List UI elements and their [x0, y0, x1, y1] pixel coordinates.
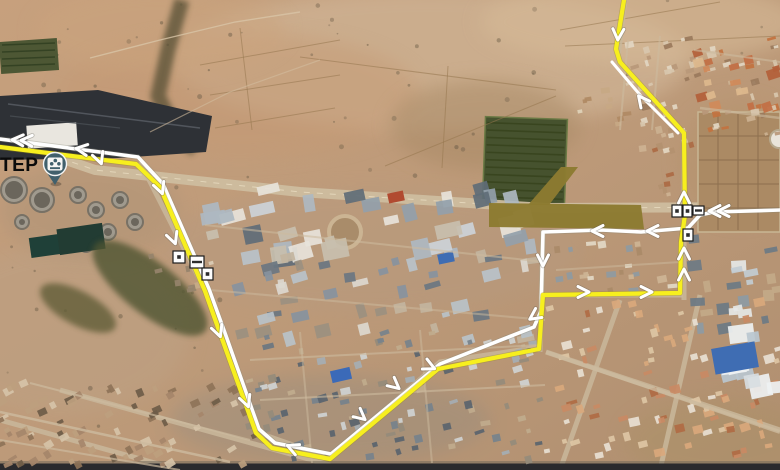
node-marker[interactable] [683, 229, 693, 241]
node-marker[interactable] [173, 251, 185, 263]
node-marker[interactable] [693, 206, 704, 215]
map-viewport[interactable]: TEP [0, 0, 780, 470]
node-marker[interactable] [672, 205, 682, 217]
node-marker[interactable] [683, 205, 692, 217]
satellite-map: TEP [0, 0, 780, 470]
terrain-basemap [0, 0, 780, 470]
treatment-plant-icon [48, 158, 63, 171]
treatment-plant-label: TEP [0, 155, 38, 176]
node-marker[interactable] [190, 256, 204, 268]
node-marker[interactable] [202, 268, 213, 280]
